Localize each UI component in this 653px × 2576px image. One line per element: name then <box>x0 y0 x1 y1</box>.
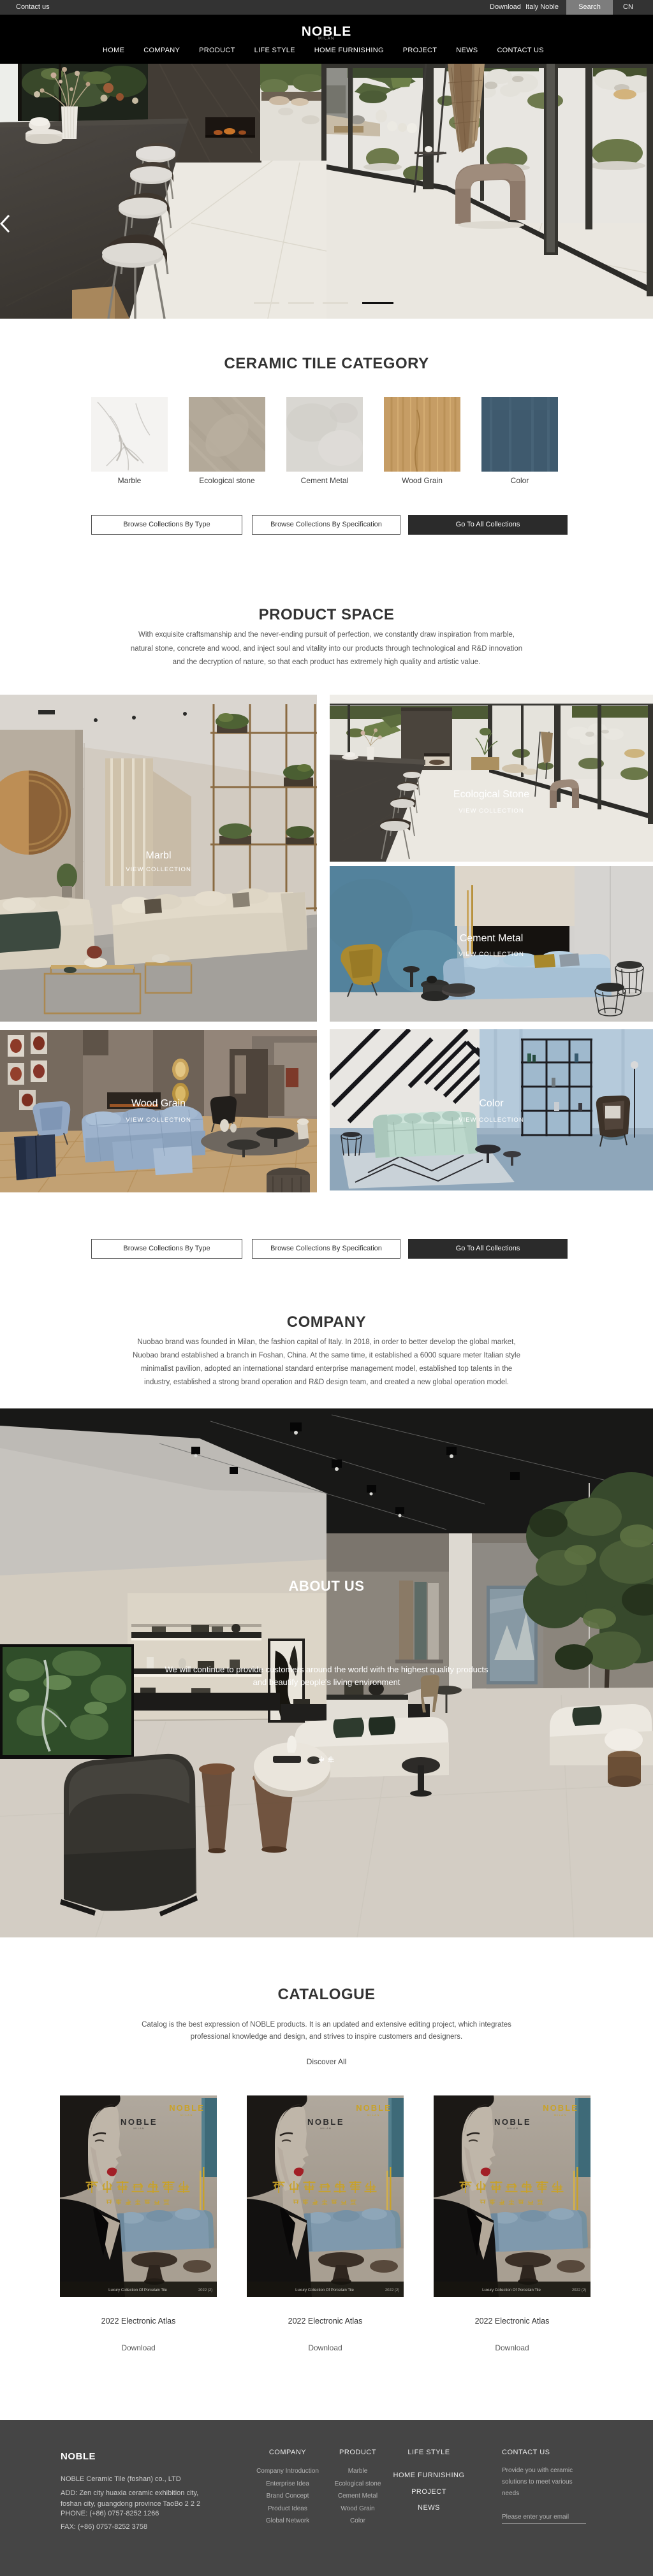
svg-text:Luxury Collection Of Porcelain: Luxury Collection Of Porcelain Tile <box>108 2289 167 2292</box>
svg-text:NOBLE: NOBLE <box>121 2117 158 2127</box>
svg-text:MILAN: MILAN <box>133 2127 144 2130</box>
svg-text:MILAN: MILAN <box>180 2113 193 2117</box>
svg-text:2022 (2): 2022 (2) <box>198 2289 212 2292</box>
svg-text:NOBLE: NOBLE <box>169 2103 205 2113</box>
